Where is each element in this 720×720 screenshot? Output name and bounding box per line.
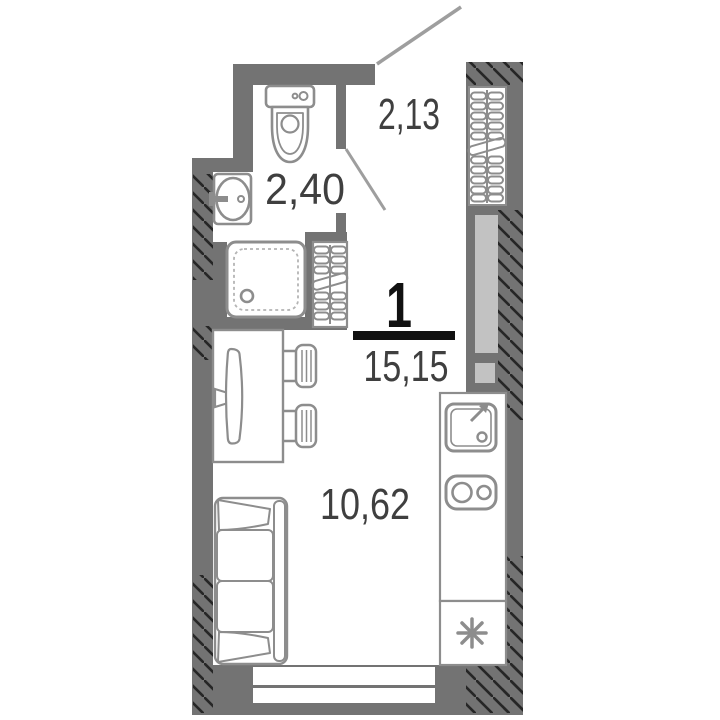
floor-plan: 2,13 2,40 10,62 1 15,15 — [0, 0, 720, 720]
sofa — [215, 498, 287, 664]
hallway-area-label: 2,13 — [378, 90, 440, 139]
wardrobe — [467, 87, 506, 205]
hanger-rack — [311, 242, 348, 327]
toilet — [266, 86, 314, 162]
chair — [284, 345, 316, 387]
living-room-area-label: 10,62 — [320, 480, 410, 529]
door-swing — [346, 149, 385, 210]
callout-line — [377, 7, 461, 64]
refrigerator — [440, 601, 506, 665]
chair — [284, 405, 316, 447]
unit-divider — [353, 331, 455, 340]
bathroom-area-label: 2,40 — [265, 165, 345, 214]
kitchen-sink — [446, 403, 496, 451]
stove-2-burner — [446, 476, 496, 509]
unit-area-callout: 1 15,15 — [353, 269, 455, 391]
window — [253, 667, 435, 703]
wash-basin — [209, 174, 251, 224]
unit-number-label: 1 — [386, 269, 412, 341]
floor-plan-svg: 2,13 2,40 10,62 1 15,15 — [0, 0, 720, 720]
snowflake-icon — [458, 619, 486, 647]
shower-cabin — [227, 242, 305, 317]
chairs — [284, 345, 316, 447]
total-area-label: 15,15 — [364, 342, 449, 391]
